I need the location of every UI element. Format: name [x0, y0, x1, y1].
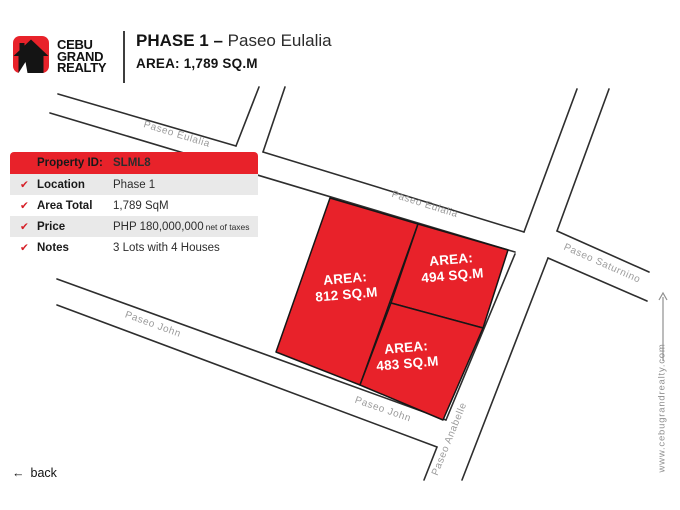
- title-block: PHASE 1 – Paseo Eulalia AREA: 1,789 SQ.M: [136, 31, 332, 71]
- table-row-price: ✔ Price PHP 180,000,000net of taxes: [10, 216, 258, 237]
- page-title-phase: PHASE 1: [136, 31, 209, 50]
- header: CEBU GRAND REALTY PHASE 1 – Paseo Eulali…: [0, 0, 680, 92]
- row-label: Area Total: [37, 200, 113, 212]
- header-divider: [123, 31, 125, 83]
- page-title-separator: –: [209, 31, 228, 50]
- back-label: back: [31, 466, 57, 480]
- page-title-street: Paseo Eulalia: [228, 31, 332, 50]
- check-icon: ✔: [10, 200, 37, 212]
- back-link[interactable]: ←back: [12, 466, 57, 480]
- row-label: Price: [37, 221, 113, 233]
- street-anabelle-right-line: [557, 89, 609, 231]
- row-value: 3 Lots with 4 Houses: [113, 242, 258, 254]
- row-label: Location: [37, 179, 113, 191]
- page-subtitle-area: AREA: 1,789 SQ.M: [136, 56, 332, 71]
- row-label: Notes: [37, 242, 113, 254]
- brand-logo: [13, 36, 49, 73]
- brand-line-3: REALTY: [57, 62, 106, 74]
- check-icon: ✔: [10, 221, 37, 233]
- table-row-area-total: ✔ Area Total 1,789 SqM: [10, 195, 258, 216]
- check-icon: ✔: [10, 179, 37, 191]
- property-id-value: SLML8: [113, 157, 258, 169]
- brand-name: CEBU GRAND REALTY: [57, 39, 106, 74]
- property-table-header: Property ID: SLML8: [10, 152, 258, 174]
- table-row-notes: ✔ Notes 3 Lots with 4 Houses: [10, 237, 258, 258]
- property-table: Property ID: SLML8 ✔ Location Phase 1 ✔ …: [10, 152, 258, 258]
- row-value: PHP 180,000,000net of taxes: [113, 221, 258, 233]
- cross-street-right-line: [263, 87, 285, 152]
- page-title: PHASE 1 – Paseo Eulalia: [136, 31, 332, 51]
- cross-street-left-line: [236, 87, 259, 146]
- price-note: net of taxes: [206, 222, 250, 232]
- property-id-label: Property ID:: [37, 157, 113, 169]
- street-label-eulalia-west: Paseo Eulalia: [142, 119, 211, 150]
- check-icon: ✔: [10, 242, 37, 254]
- lots: [276, 198, 508, 420]
- website-link[interactable]: www.cebugrandrealty.com: [657, 363, 670, 473]
- house-icon: [13, 36, 49, 73]
- row-value: 1,789 SqM: [113, 200, 258, 212]
- street-label-eulalia-east: Paseo Eulalia: [390, 189, 459, 220]
- street-saturnino-anabelle-left-line: [524, 89, 577, 232]
- price-value: PHP 180,000,000: [113, 221, 204, 233]
- table-row-location: ✔ Location Phase 1: [10, 174, 258, 195]
- row-value: Phase 1: [113, 179, 258, 191]
- back-arrow-icon: ←: [12, 466, 25, 480]
